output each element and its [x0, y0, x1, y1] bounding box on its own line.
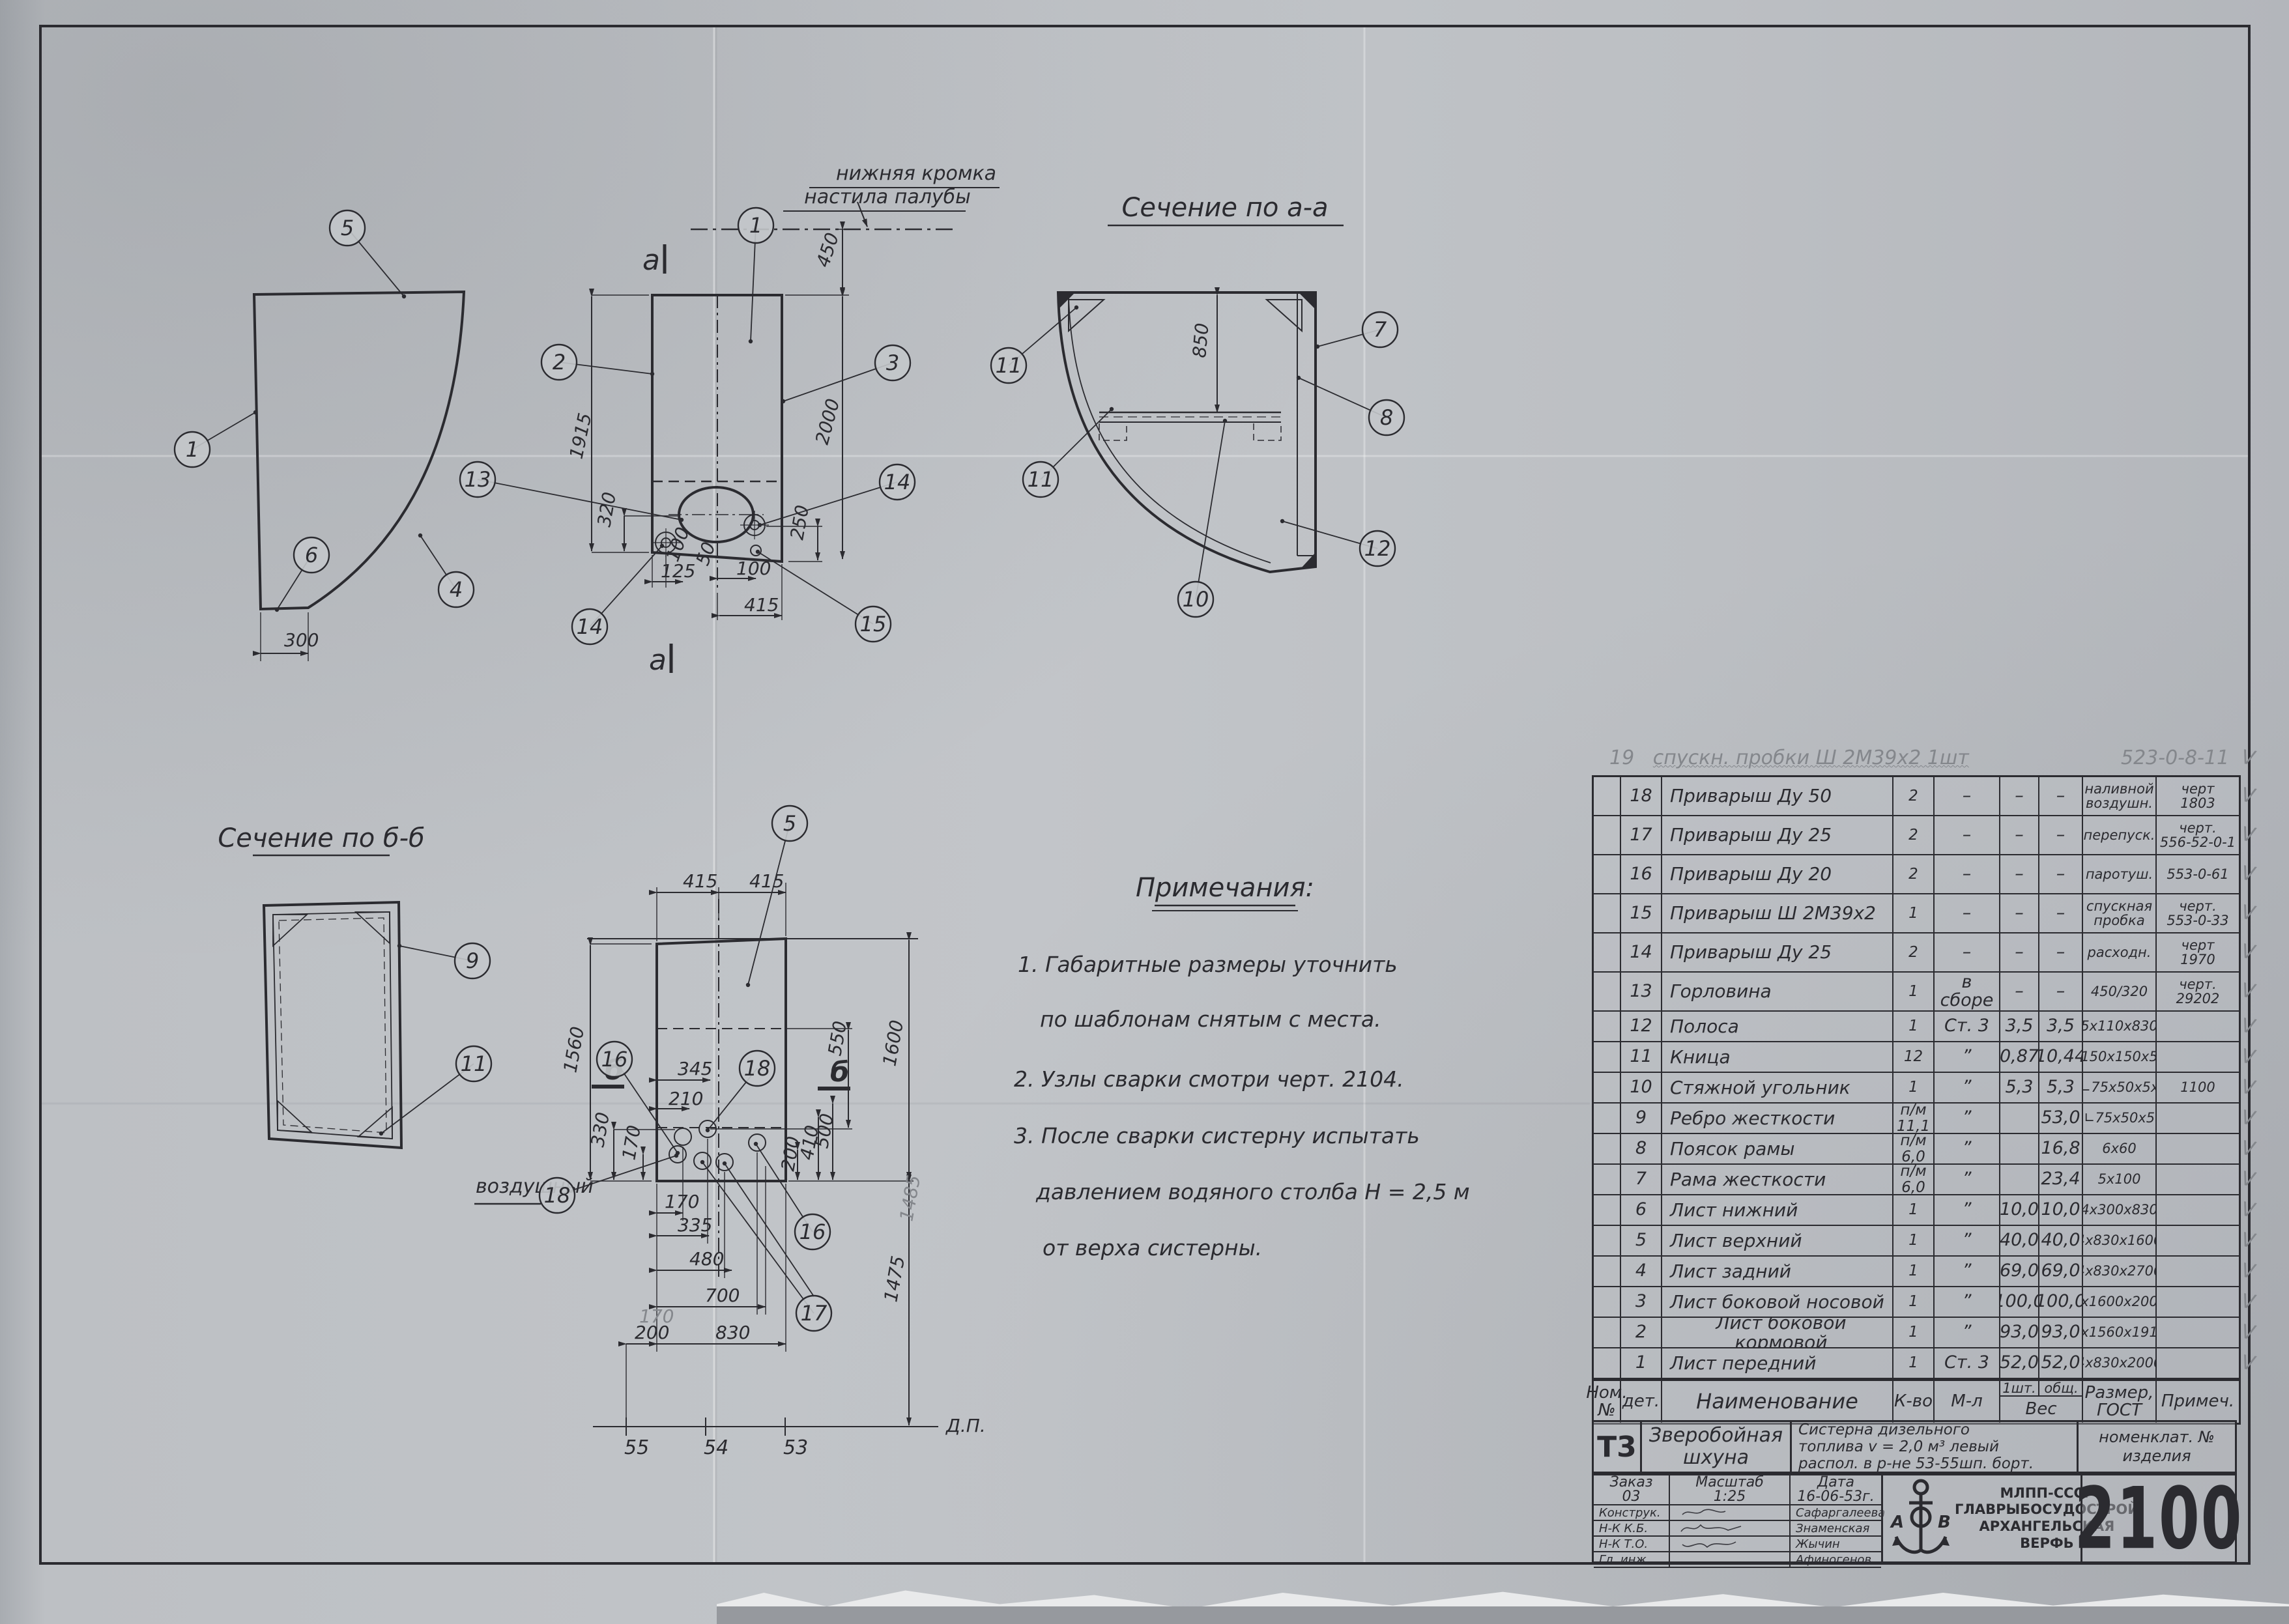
signature-rows: Конструк.СафаргалееваН-К К.Б.ЗнаменскаяН…	[1594, 1505, 1881, 1568]
callout-1: 1	[175, 410, 257, 467]
signature-role: Конструк.	[1594, 1505, 1670, 1520]
parts-row-1: 1Лист передний1Ст. 352,052,04х830х2000	[1594, 1348, 2239, 1379]
cell-c-note: черт. 553-0-33	[2157, 894, 2239, 933]
frame-label-54: 54	[704, 1436, 728, 1459]
svg-text:8: 8	[1380, 405, 1393, 430]
cell-c-num: 16	[1621, 855, 1662, 894]
cell-c-size: перепуск.	[2083, 816, 2157, 855]
dimension-1600: 1600	[878, 1018, 908, 1068]
pencil-check-13: V	[2240, 1197, 2256, 1222]
callout-9: 9	[397, 943, 490, 978]
cell-c-num: 10	[1621, 1073, 1662, 1104]
signature-scribble	[1670, 1537, 1791, 1551]
cell-c-size: спускная пробка	[2083, 894, 2157, 933]
background-below-tear	[717, 1606, 2289, 1624]
cell-c-w1: –	[2000, 777, 2039, 816]
cell-c-num: 18	[1621, 777, 1662, 816]
cell-c-qty: 1	[1893, 1348, 1935, 1379]
dimension-700: 700	[705, 1285, 740, 1306]
cell-c-mat: ”	[1935, 1073, 2000, 1104]
marker-b-right: б	[830, 1056, 849, 1088]
cell-c-mat: –	[1935, 894, 2000, 933]
cell-c-w2: 100,0	[2039, 1287, 2083, 1318]
pencil-check-3: V	[2240, 862, 2256, 887]
signature-row-3: Н-К Т.О.Жычин	[1594, 1537, 1881, 1552]
cell-c-mat: Ст. 3	[1935, 1348, 2000, 1379]
cell-nom	[1594, 1165, 1621, 1195]
cell-c-name: Лист задний	[1662, 1257, 1893, 1287]
air-label: воздушный	[476, 1175, 594, 1198]
section-bb-title: Сечение по б-б	[218, 823, 424, 853]
order-value: 03	[1622, 1490, 1641, 1504]
pencil-check-14: V	[2240, 1228, 2256, 1253]
cell-c-size: 5х100	[2083, 1165, 2157, 1195]
order-label: Заказ	[1609, 1475, 1652, 1490]
pencil-row-num: 19	[1609, 747, 1634, 769]
pencil-check-11: V	[2240, 1136, 2256, 1161]
cell-c-w2: 53,0	[2039, 1104, 2083, 1134]
scale-cell: Масштаб 1:25	[1670, 1475, 1791, 1504]
header-size: Размер, ГОСТ	[2083, 1381, 2157, 1423]
cell-c-w1: –	[2000, 894, 2039, 933]
parts-table-header: Ном. № дет. Наименование К-во М-л 1шт. о…	[1594, 1379, 2239, 1423]
dimension-850: 850	[1188, 322, 1213, 358]
callout-10: 10	[1178, 419, 1227, 617]
cell-c-name: Поясок рамы	[1662, 1134, 1893, 1165]
note-line-4: 3. После сварки систерну испытать	[1014, 1123, 1420, 1148]
pencil-check-16: V	[2240, 1289, 2256, 1314]
pencil-check-9: V	[2240, 1075, 2256, 1100]
cell-c-num: 7	[1621, 1165, 1662, 1195]
callout-14: 14	[572, 544, 664, 644]
cell-c-mat: ”	[1935, 1318, 2000, 1348]
svg-text:6: 6	[305, 543, 318, 567]
view-front-sheet	[652, 202, 958, 673]
dimension-100: 100	[736, 558, 771, 579]
marker-a-bottom: а	[649, 644, 667, 677]
cell-c-size: ∟75х50х5х	[2083, 1073, 2157, 1104]
header-note: Примеч.	[2157, 1381, 2239, 1423]
deck-note-line1: нижняя кромка	[836, 162, 996, 185]
cell-c-name: Лист боковой носовой	[1662, 1287, 1893, 1318]
svg-text:18: 18	[744, 1056, 771, 1081]
cell-c-size: наливной воздушн.	[2083, 777, 2157, 816]
cell-nom	[1594, 777, 1621, 816]
cell-c-name: Рама жесткости	[1662, 1165, 1893, 1195]
signature-row-1: Конструк.Сафаргалеева	[1594, 1505, 1881, 1521]
cell-c-size: 5х110х830	[2083, 1012, 2157, 1042]
cell-nom	[1594, 1012, 1621, 1042]
callout-11: 11	[379, 1046, 491, 1135]
header-weight: 1шт. общ. Вес	[2000, 1381, 2083, 1423]
cell-nom	[1594, 1257, 1621, 1287]
cell-c-name: Приварыш Ш 2М39х2	[1662, 894, 1893, 933]
svg-text:5: 5	[341, 216, 354, 240]
svg-text:11: 11	[1028, 467, 1054, 492]
svg-text:16: 16	[601, 1047, 628, 1072]
cell-c-num: 14	[1621, 933, 1662, 973]
cell-c-qty: 1	[1893, 1073, 1935, 1104]
cell-c-size: 4х830х1600	[2083, 1226, 2157, 1257]
cell-c-name: Лист боковой кормовой	[1662, 1318, 1893, 1348]
scale-label: Масштаб	[1695, 1475, 1764, 1490]
header-mat: М-л	[1935, 1381, 2000, 1423]
parts-row-12: 12Полоса1Ст. 33,53,55х110х830	[1594, 1012, 2239, 1042]
header-weight-label: Вес	[2025, 1397, 2056, 1423]
cell-c-name: Ребро жесткости	[1662, 1104, 1893, 1134]
cell-c-num: 11	[1621, 1042, 1662, 1073]
cell-c-mat: Ст. 3	[1935, 1012, 2000, 1042]
cell-c-name: Полоса	[1662, 1012, 1893, 1042]
svg-text:11: 11	[461, 1051, 487, 1076]
cell-c-w1: –	[2000, 973, 2039, 1012]
cell-c-w1: 10,0	[2000, 1195, 2039, 1226]
header-name: Наименование	[1662, 1381, 1893, 1423]
cell-c-num: 5	[1621, 1226, 1662, 1257]
cell-c-qty: 1	[1893, 1257, 1935, 1287]
cell-c-w1: –	[2000, 855, 2039, 894]
view-section-bb	[264, 902, 401, 1148]
callout-2: 2	[541, 345, 654, 380]
drawing-number: 2100	[2075, 1469, 2243, 1568]
parts-row-16: 16Приварыш Ду 202–––паротуш.553-0-61	[1594, 855, 2239, 894]
dimension-1475: 1475	[880, 1254, 909, 1303]
cell-c-num: 17	[1621, 816, 1662, 855]
dimension-550: 550	[824, 1019, 851, 1057]
cell-c-name: Лист передний	[1662, 1348, 1893, 1379]
cell-c-qty: 2	[1893, 855, 1935, 894]
parts-row-13: 13Горловина1в сборе––450/320черт. 29202	[1594, 973, 2239, 1012]
notes-title: Примечания:	[1136, 873, 1314, 903]
titleblock-left-grid: Заказ 03 Масштаб 1:25 Дата 16-06-53г. Ко…	[1592, 1474, 1883, 1563]
callout-18: 18	[540, 1154, 678, 1213]
signature-row-2: Н-К К.Б.Знаменская	[1594, 1521, 1881, 1537]
cell-c-note: 553-0-61	[2157, 855, 2239, 894]
note-line-2: по шаблонам снятым с места.	[1040, 1006, 1381, 1032]
svg-text:17: 17	[801, 1301, 828, 1326]
cell-c-w2: –	[2039, 973, 2083, 1012]
cell-c-w2: 52,0	[2039, 1348, 2083, 1379]
parts-row-7: 7Рама жесткостип/м 6,0”23,45х100	[1594, 1165, 2239, 1195]
svg-text:3: 3	[886, 350, 899, 375]
signature-role: Гл. инж.	[1594, 1552, 1670, 1567]
vessel-name: Зверобойная шхуна	[1649, 1425, 1783, 1470]
date-value: 16-06-53г.	[1797, 1490, 1874, 1504]
cell-c-note	[2157, 1134, 2239, 1165]
callout-5: 5	[746, 806, 807, 987]
parts-row-14: 14Приварыш Ду 252–––расходн.черт 1970	[1594, 933, 2239, 973]
cell-c-note	[2157, 1226, 2239, 1257]
signature-role: Н-К К.Б.	[1594, 1521, 1670, 1535]
header-qty: К-во	[1893, 1381, 1935, 1423]
cell-c-num: 12	[1621, 1012, 1662, 1042]
cell-c-size: 4х830х2700	[2083, 1257, 2157, 1287]
dimension-480: 480	[689, 1248, 724, 1270]
cell-c-name: Кница	[1662, 1042, 1893, 1073]
cell-nom	[1594, 1042, 1621, 1073]
cell-c-note: черт. 556-52-0-1	[2157, 816, 2239, 855]
cell-nom	[1594, 973, 1621, 1012]
dimension-200: 200	[777, 1135, 804, 1173]
dimension-450: 450	[812, 230, 843, 270]
cell-c-note: черт. 29202	[2157, 973, 2239, 1012]
titleblock-object-cell: Зверобойная шхуна	[1640, 1420, 1792, 1474]
signature-name: Знаменская	[1791, 1521, 1881, 1535]
cell-c-w2: 93,0	[2039, 1318, 2083, 1348]
pencil-check-15: V	[2240, 1259, 2256, 1283]
cell-c-w1: 5,3	[2000, 1073, 2039, 1104]
titleblock-nomenclature-cell: номенклат. № изделия	[2077, 1420, 2237, 1474]
cell-c-size: ∟75х50х5	[2083, 1104, 2157, 1134]
cell-c-qty: 1	[1893, 1318, 1935, 1348]
plan-holes	[669, 1120, 766, 1171]
dimension-415: 415	[749, 870, 784, 892]
note-line-3: 2. Узлы сварки смотри черт. 2104.	[1014, 1066, 1404, 1092]
parts-row-18: 18Приварыш Ду 502–––наливной воздушн.чер…	[1594, 777, 2239, 816]
cell-c-mat: ”	[1935, 1134, 2000, 1165]
dimension-415: 415	[744, 594, 779, 616]
cell-c-num: 4	[1621, 1257, 1662, 1287]
cell-c-size: 4х1600х2000	[2083, 1287, 2157, 1318]
pencil-check-8: V	[2240, 1044, 2256, 1069]
pencil-row-text: спускн. пробки Ш 2М39х2 1шт	[1653, 747, 1969, 769]
deck-note-line2: настила палубы	[804, 186, 971, 208]
cell-c-mat: ”	[1935, 1195, 2000, 1226]
cell-c-w1	[2000, 1134, 2039, 1165]
pencil-row-19: 19 спускн. пробки Ш 2М39х2 1шт	[1609, 747, 1969, 769]
date-label: Дата	[1817, 1475, 1854, 1490]
parts-table: 18Приварыш Ду 502–––наливной воздушн.чер…	[1592, 775, 2241, 1425]
doc-code: Т3	[1597, 1431, 1637, 1464]
order-cell: Заказ 03	[1594, 1475, 1670, 1504]
cell-c-size: 4х300х830	[2083, 1195, 2157, 1226]
cell-c-qty: 1	[1893, 973, 1935, 1012]
cell-c-qty: п/м 6,0	[1893, 1165, 1935, 1195]
cell-c-mat: в сборе	[1935, 973, 2000, 1012]
pencil-code: 523-0-8-11	[2121, 747, 2229, 769]
cell-c-size: 450/320	[2083, 973, 2157, 1012]
dimension-415: 415	[683, 870, 717, 892]
cell-c-w2: –	[2039, 777, 2083, 816]
parts-row-10: 10Стяжной угольник1”5,35,3∟75х50х5х1100	[1594, 1073, 2239, 1104]
note-line-5: давлением водяного столба Н = 2,5 м	[1035, 1179, 1470, 1204]
svg-text:14: 14	[884, 470, 911, 494]
cell-nom	[1594, 1287, 1621, 1318]
cell-c-qty: 2	[1893, 777, 1935, 816]
callout-11: 11	[991, 306, 1078, 383]
frame-label-53: 53	[783, 1436, 808, 1459]
cell-c-w1: 100,0	[2000, 1287, 2039, 1318]
cell-c-w1: –	[2000, 933, 2039, 973]
signature-role: Н-К Т.О.	[1594, 1537, 1670, 1551]
cell-nom	[1594, 1226, 1621, 1257]
parts-rows: 18Приварыш Ду 502–––наливной воздушн.чер…	[1594, 777, 2239, 1379]
svg-text:11: 11	[996, 353, 1022, 378]
cell-c-w2: –	[2039, 855, 2083, 894]
cell-c-w2: –	[2039, 894, 2083, 933]
dimension-1560: 1560	[559, 1025, 588, 1074]
cell-c-size: 150х150х5	[2083, 1042, 2157, 1073]
parts-row-3: 3Лист боковой носовой1”100,0100,04х1600х…	[1594, 1287, 2239, 1318]
section-aa-title: Сечение по а-а	[1121, 193, 1328, 223]
callout-11: 11	[1023, 407, 1114, 497]
callout-13: 13	[460, 462, 684, 522]
callout-4: 4	[418, 534, 474, 607]
cell-c-mat: –	[1935, 816, 2000, 855]
cell-c-note	[2157, 1257, 2239, 1287]
cell-c-num: 6	[1621, 1195, 1662, 1226]
cell-nom	[1594, 1348, 1621, 1379]
cell-c-note: черт 1803	[2157, 777, 2239, 816]
pencil-check-17: V	[2240, 1320, 2256, 1345]
cell-c-name: Приварыш Ду 25	[1662, 816, 1893, 855]
pencil-check-2: V	[2240, 823, 2256, 848]
dimension-320: 320	[593, 491, 620, 528]
shipyard-anchor-logo: А В	[1887, 1477, 1955, 1560]
pencil-check-7: V	[2240, 1014, 2256, 1038]
cell-nom	[1594, 1104, 1621, 1134]
cell-c-mat: –	[1935, 777, 2000, 816]
cell-c-note: 1100	[2157, 1073, 2239, 1104]
logo-letter-right: В	[1938, 1513, 1951, 1532]
header-nom: Ном. №	[1594, 1381, 1621, 1423]
pencil-check-10: V	[2240, 1105, 2256, 1130]
parts-row-6: 6Лист нижний1”10,010,04х300х830	[1594, 1195, 2239, 1226]
svg-text:5: 5	[783, 811, 796, 836]
titleblock-org-cell: А В МЛПП-СССР ГЛАВРЫБОСУДОСТРОЙ АРХАНГЕЛ…	[1881, 1474, 2082, 1563]
title-underlines	[253, 188, 1344, 911]
dimension-335: 335	[678, 1214, 712, 1236]
pencil-check-5: V	[2240, 940, 2256, 965]
svg-text:9: 9	[466, 948, 479, 973]
cell-c-w1: 3,5	[2000, 1012, 2039, 1042]
cell-c-w1	[2000, 1165, 2039, 1195]
cell-c-w1	[2000, 1104, 2039, 1134]
parts-row-15: 15Приварыш Ш 2М39х21–––спускная пробкаче…	[1594, 894, 2239, 933]
dimension-300: 300	[284, 629, 319, 651]
logo-letter-left: А	[1890, 1513, 1904, 1532]
cell-c-qty: 1	[1893, 1226, 1935, 1257]
cell-c-qty: 2	[1893, 816, 1935, 855]
cell-c-w2: –	[2039, 933, 2083, 973]
cell-nom	[1594, 894, 1621, 933]
cell-c-name: Стяжной угольник	[1662, 1073, 1893, 1104]
cell-c-w1: 0,87	[2000, 1042, 2039, 1073]
cell-c-note	[2157, 1348, 2239, 1379]
svg-text:7: 7	[1374, 317, 1387, 342]
signature-name: Афиногенов	[1791, 1552, 1881, 1567]
callout-5: 5	[330, 210, 406, 298]
cell-c-w1: 40,0	[2000, 1226, 2039, 1257]
cell-c-w2: 16,8	[2039, 1134, 2083, 1165]
cell-c-name: Приварыш Ду 20	[1662, 855, 1893, 894]
drawing-texts: 3001915450200032025012510050100415850415…	[218, 162, 1469, 1459]
cell-c-size: расходн.	[2083, 933, 2157, 973]
header-weight-each: 1шт.	[2000, 1381, 2039, 1395]
cell-c-mat: ”	[1935, 1165, 2000, 1195]
svg-text:12: 12	[1364, 536, 1391, 561]
cell-c-mat: ”	[1935, 1257, 2000, 1287]
signature-scribble	[1670, 1552, 1791, 1567]
frame-label-55: 55	[624, 1436, 649, 1459]
cell-c-num: 8	[1621, 1134, 1662, 1165]
cell-c-note	[2157, 1104, 2239, 1134]
parts-row-5: 5Лист верхний1”40,040,04х830х1600	[1594, 1226, 2239, 1257]
titleblock-description-cell: Систерна дизельного топлива v = 2,0 м³ л…	[1790, 1420, 2079, 1474]
cell-c-num: 13	[1621, 973, 1662, 1012]
cell-c-size: 4х1560х1915	[2083, 1318, 2157, 1348]
cell-c-num: 15	[1621, 894, 1662, 933]
svg-text:15: 15	[860, 612, 887, 636]
callout-1: 1	[738, 208, 773, 343]
view-section-aa	[1058, 292, 1316, 572]
cell-c-note: черт 1970	[2157, 933, 2239, 973]
parts-row-17: 17Приварыш Ду 252–––перепуск.черт. 556-5…	[1594, 816, 2239, 855]
cell-c-num: 3	[1621, 1287, 1662, 1318]
signature-name: Жычин	[1791, 1537, 1881, 1551]
parts-row-4: 4Лист задний1”69,069,04х830х2700	[1594, 1257, 2239, 1287]
cell-nom	[1594, 933, 1621, 973]
cell-nom	[1594, 855, 1621, 894]
header-weight-total: общ.	[2039, 1381, 2083, 1395]
signature-scribble	[1670, 1521, 1791, 1535]
titleblock-code-cell: Т3	[1592, 1420, 1642, 1474]
cell-c-qty: п/м 6,0	[1893, 1134, 1935, 1165]
cell-c-mat: –	[1935, 855, 2000, 894]
signature-scribble	[1670, 1505, 1791, 1520]
signature-name: Сафаргалеева	[1791, 1505, 1881, 1520]
titleblock-number-cell: 2100	[2080, 1474, 2237, 1563]
dimension-100: 100	[662, 524, 694, 565]
svg-text:4: 4	[450, 577, 463, 602]
callout-7: 7	[1316, 312, 1398, 349]
pencil-check-1: V	[2240, 784, 2256, 808]
cell-c-qty: 1	[1893, 1012, 1935, 1042]
svg-text:13: 13	[465, 467, 491, 492]
dimension-345: 345	[678, 1058, 712, 1079]
cell-c-name: Лист верхний	[1662, 1226, 1893, 1257]
cell-c-w2: 40,0	[2039, 1226, 2083, 1257]
parts-row-11: 11Кница12”0,8710,44150х150х5	[1594, 1042, 2239, 1073]
cell-c-qty: 1	[1893, 1287, 1935, 1318]
svg-text:18: 18	[544, 1183, 571, 1208]
cell-c-qty: 1	[1893, 894, 1935, 933]
cell-c-size: паротуш.	[2083, 855, 2157, 894]
cell-nom	[1594, 1134, 1621, 1165]
cell-c-w2: 10,44	[2039, 1042, 2083, 1073]
cell-c-w1: 52,0	[2000, 1348, 2039, 1379]
blueprint-scan: 3001915450200032025012510050100415850415…	[0, 0, 2289, 1624]
marker-a-top: а	[642, 244, 660, 277]
date-cell: Дата 16-06-53г.	[1791, 1475, 1881, 1504]
header-det: дет.	[1621, 1381, 1662, 1423]
svg-text:1: 1	[749, 213, 762, 238]
cell-c-note	[2157, 1287, 2239, 1318]
cell-nom	[1594, 816, 1621, 855]
cell-c-qty: 12	[1893, 1042, 1935, 1073]
cell-c-w2: 3,5	[2039, 1012, 2083, 1042]
pencil-check-18: V	[2240, 1350, 2256, 1375]
cell-c-note	[2157, 1318, 2239, 1348]
dimension-830: 830	[715, 1322, 750, 1343]
cell-nom	[1594, 1073, 1621, 1104]
cell-c-w2: –	[2039, 816, 2083, 855]
cell-nom	[1594, 1195, 1621, 1226]
cell-c-size: 6х60	[2083, 1134, 2157, 1165]
cell-c-w1: 93,0	[2000, 1318, 2039, 1348]
cell-c-w2: 5,3	[2039, 1073, 2083, 1104]
cell-c-w1: 69,0	[2000, 1257, 2039, 1287]
